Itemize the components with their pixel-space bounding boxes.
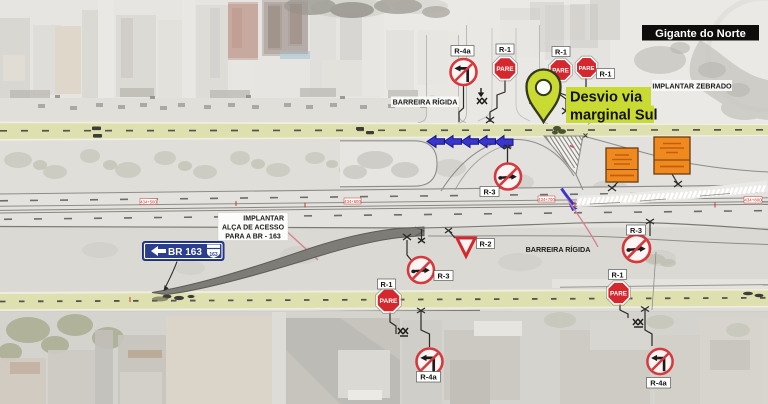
- svg-text:434+600: 434+600: [344, 199, 361, 204]
- svg-text:BR 163: BR 163: [168, 247, 202, 258]
- svg-text:BARREIRA RÍGIDA: BARREIRA RÍGIDA: [526, 245, 591, 254]
- svg-text:434+800: 434+800: [744, 198, 762, 203]
- svg-text:R-3: R-3: [630, 226, 642, 235]
- svg-text:marginal Sul: marginal Sul: [570, 108, 658, 124]
- svg-text:R-1: R-1: [612, 270, 624, 279]
- svg-text:R-4a: R-4a: [420, 373, 437, 382]
- svg-text:R-3: R-3: [484, 187, 496, 196]
- svg-text:Desvio via: Desvio via: [570, 90, 643, 106]
- svg-text:Gigante do Norte: Gigante do Norte: [655, 28, 746, 40]
- svg-text:R-4a: R-4a: [650, 379, 667, 388]
- svg-text:163: 163: [209, 252, 218, 258]
- svg-text:R-4a: R-4a: [454, 47, 471, 56]
- svg-text:IMPLANTAR ZEBRADO: IMPLANTAR ZEBRADO: [652, 82, 732, 91]
- svg-text:IMPLANTAR: IMPLANTAR: [243, 216, 284, 223]
- svg-text:BARREIRA RÍGIDA: BARREIRA RÍGIDA: [393, 98, 458, 107]
- svg-text:434+700: 434+700: [538, 197, 555, 202]
- svg-text:R-1: R-1: [600, 69, 612, 78]
- svg-text:R-1: R-1: [499, 45, 511, 54]
- svg-text:R-3: R-3: [438, 271, 450, 280]
- svg-text:R-1: R-1: [555, 47, 567, 56]
- svg-text:R-1: R-1: [381, 280, 393, 289]
- svg-text:PARA A BR - 163: PARA A BR - 163: [225, 234, 281, 241]
- svg-text:434+500: 434+500: [140, 199, 157, 204]
- svg-text:R-2: R-2: [480, 239, 492, 248]
- svg-text:ALÇA DE ACESSO: ALÇA DE ACESSO: [222, 225, 285, 232]
